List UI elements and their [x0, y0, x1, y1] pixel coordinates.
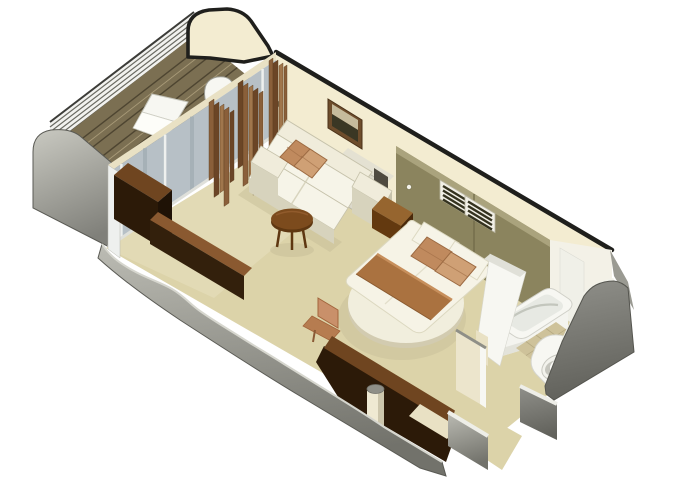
curtain-fold	[238, 80, 243, 168]
floorplan-rendering	[0, 0, 680, 486]
column-cap	[367, 385, 384, 394]
end-panel-edge	[480, 344, 486, 408]
panel-knob	[406, 184, 411, 189]
curtain-fold	[214, 102, 219, 197]
curtain-fold	[224, 107, 229, 206]
stateroom-floorplan	[0, 0, 680, 486]
curtain-fold	[243, 83, 248, 186]
curtain-fold	[220, 104, 224, 193]
curtain-fold	[230, 110, 234, 183]
curtain-fold	[209, 99, 214, 180]
